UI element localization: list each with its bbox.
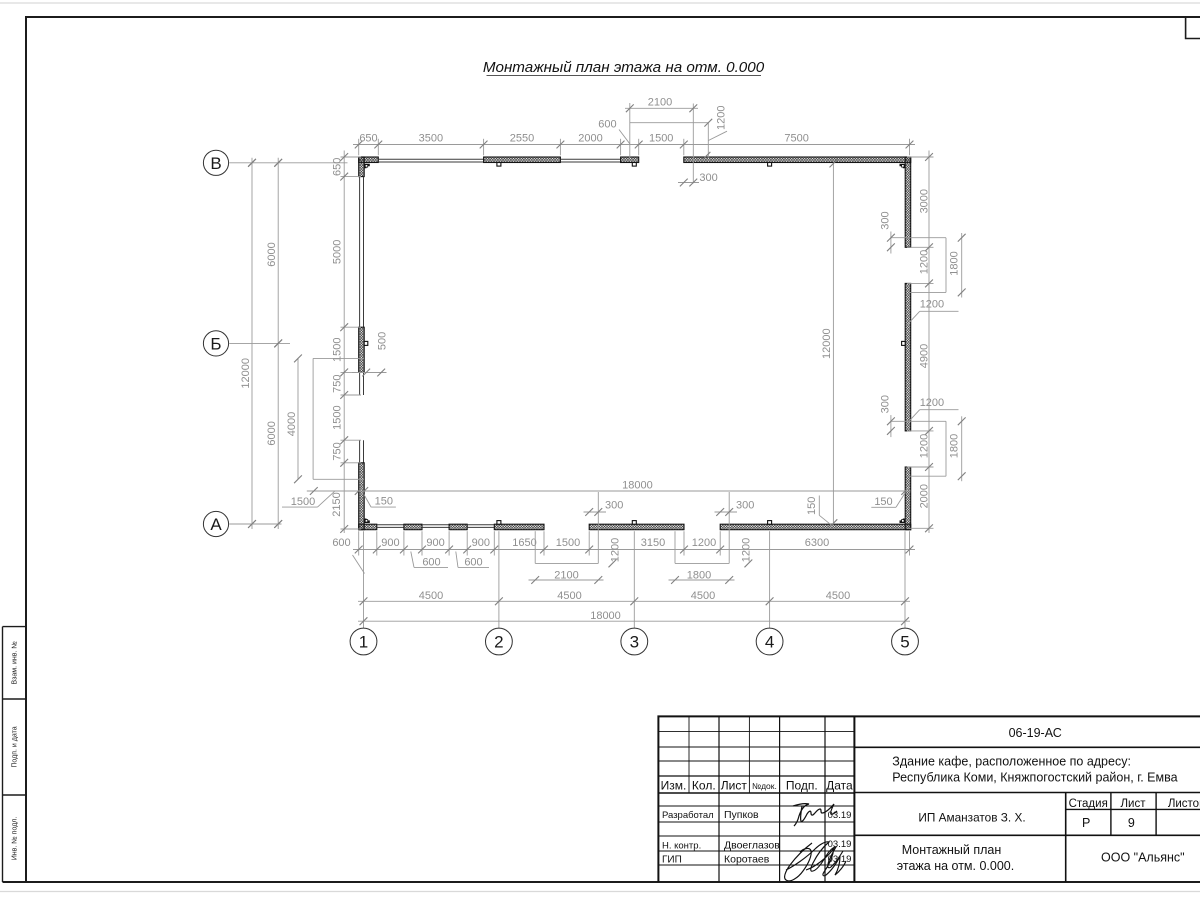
svg-text:750: 750: [332, 375, 344, 393]
svg-text:18000: 18000: [590, 610, 621, 622]
svg-text:Здание кафе, расположенное по: Здание кафе, расположенное по адресу:: [892, 755, 1131, 769]
svg-text:1500: 1500: [649, 133, 673, 145]
svg-text:18000: 18000: [622, 479, 653, 491]
svg-text:Кол.: Кол.: [692, 779, 716, 793]
svg-text:500: 500: [377, 332, 389, 350]
svg-text:1200: 1200: [919, 250, 931, 274]
svg-text:7500: 7500: [784, 133, 808, 145]
svg-text:Инв. № подл.: Инв. № подл.: [11, 817, 18, 861]
svg-text:Республика Коми, Княжпогостски: Республика Коми, Княжпогостский район, г…: [892, 771, 1177, 785]
svg-text:ГИП: ГИП: [662, 854, 682, 865]
svg-text:Б: Б: [210, 335, 221, 354]
svg-text:5000: 5000: [332, 240, 344, 264]
svg-text:900: 900: [472, 537, 490, 549]
svg-text:12000: 12000: [821, 328, 833, 359]
svg-text:900: 900: [426, 537, 444, 549]
svg-text:А: А: [210, 515, 222, 534]
svg-text:ООО "Альянс": ООО "Альянс": [1101, 851, 1185, 865]
svg-text:Стадия: Стадия: [1069, 798, 1108, 810]
svg-text:№док.: №док.: [752, 781, 777, 791]
svg-text:2000: 2000: [919, 484, 931, 508]
svg-text:6000: 6000: [266, 421, 278, 445]
svg-text:Листов: Листов: [1168, 798, 1200, 810]
svg-text:4: 4: [765, 633, 774, 652]
svg-text:4500: 4500: [419, 590, 443, 602]
svg-text:Р: Р: [1082, 816, 1090, 830]
svg-text:В: В: [210, 154, 221, 173]
svg-text:Монтажный план: Монтажный план: [902, 843, 1002, 857]
svg-text:Разработал: Разработал: [662, 810, 714, 821]
svg-text:3: 3: [630, 633, 639, 652]
svg-text:Лист: Лист: [721, 779, 748, 793]
svg-text:Пупков: Пупков: [724, 809, 759, 821]
svg-text:4500: 4500: [557, 590, 581, 602]
svg-text:ИП Аманзатов З. Х.: ИП Аманзатов З. Х.: [918, 811, 1025, 825]
svg-text:600: 600: [422, 556, 440, 568]
svg-text:Лист: Лист: [1121, 798, 1147, 810]
svg-text:Дата: Дата: [826, 779, 853, 793]
svg-text:1200: 1200: [715, 106, 727, 130]
svg-text:300: 300: [879, 211, 891, 229]
svg-text:650: 650: [332, 158, 344, 176]
svg-text:2150: 2150: [331, 492, 343, 516]
svg-text:3500: 3500: [419, 133, 443, 145]
svg-text:5: 5: [900, 633, 909, 652]
svg-text:Коротаев: Коротаев: [724, 853, 770, 865]
svg-text:1800: 1800: [948, 251, 960, 275]
svg-text:этажа на отм. 0.000.: этажа на отм. 0.000.: [897, 859, 1014, 873]
svg-text:Н. контр.: Н. контр.: [662, 840, 701, 851]
svg-text:12000: 12000: [240, 358, 252, 389]
svg-text:600: 600: [464, 556, 482, 568]
svg-text:600: 600: [598, 119, 616, 131]
svg-text:1200: 1200: [920, 397, 944, 409]
svg-text:06-19-АС: 06-19-АС: [1009, 726, 1062, 740]
svg-text:900: 900: [381, 537, 399, 549]
svg-text:1800: 1800: [687, 570, 711, 582]
svg-text:Изм.: Изм.: [661, 779, 687, 793]
svg-text:300: 300: [605, 500, 623, 512]
svg-text:6300: 6300: [805, 537, 829, 549]
svg-text:2100: 2100: [554, 570, 578, 582]
svg-text:150: 150: [806, 497, 818, 515]
svg-text:2000: 2000: [578, 133, 602, 145]
svg-text:150: 150: [375, 496, 393, 508]
svg-text:300: 300: [879, 395, 891, 413]
svg-text:4000: 4000: [286, 412, 298, 436]
svg-text:1800: 1800: [948, 434, 960, 458]
svg-text:Взам. инв. №: Взам. инв. №: [11, 641, 18, 684]
svg-text:Монтажный план этажа на отм. 0: Монтажный план этажа на отм. 0.000: [483, 59, 765, 76]
svg-text:750: 750: [332, 442, 344, 460]
svg-text:600: 600: [332, 537, 350, 549]
svg-text:1200: 1200: [692, 537, 716, 549]
svg-text:Подп.: Подп.: [786, 779, 818, 793]
svg-text:2100: 2100: [648, 96, 672, 108]
svg-text:3150: 3150: [641, 537, 665, 549]
svg-text:1: 1: [359, 633, 368, 652]
svg-text:6000: 6000: [266, 242, 278, 266]
svg-text:Двоеглазов: Двоеглазов: [724, 839, 780, 851]
svg-text:1200: 1200: [919, 434, 931, 458]
svg-text:1500: 1500: [556, 537, 580, 549]
svg-text:1200: 1200: [741, 538, 753, 562]
svg-text:3000: 3000: [919, 189, 931, 213]
svg-text:1200: 1200: [610, 538, 622, 562]
svg-text:650: 650: [359, 133, 377, 145]
svg-text:300: 300: [699, 172, 717, 184]
svg-text:2: 2: [494, 633, 503, 652]
svg-text:4500: 4500: [691, 590, 715, 602]
svg-text:Подп. и дата: Подп. и дата: [11, 726, 18, 767]
svg-text:1500: 1500: [332, 405, 344, 429]
svg-text:1650: 1650: [512, 537, 536, 549]
svg-text:03.19: 03.19: [828, 839, 852, 850]
svg-text:4500: 4500: [826, 590, 850, 602]
svg-text:1200: 1200: [920, 298, 944, 310]
svg-text:150: 150: [874, 496, 892, 508]
svg-text:9: 9: [1128, 816, 1135, 830]
svg-text:2550: 2550: [510, 133, 534, 145]
svg-text:1500: 1500: [291, 496, 315, 508]
svg-text:300: 300: [736, 500, 754, 512]
svg-text:4900: 4900: [919, 344, 931, 368]
